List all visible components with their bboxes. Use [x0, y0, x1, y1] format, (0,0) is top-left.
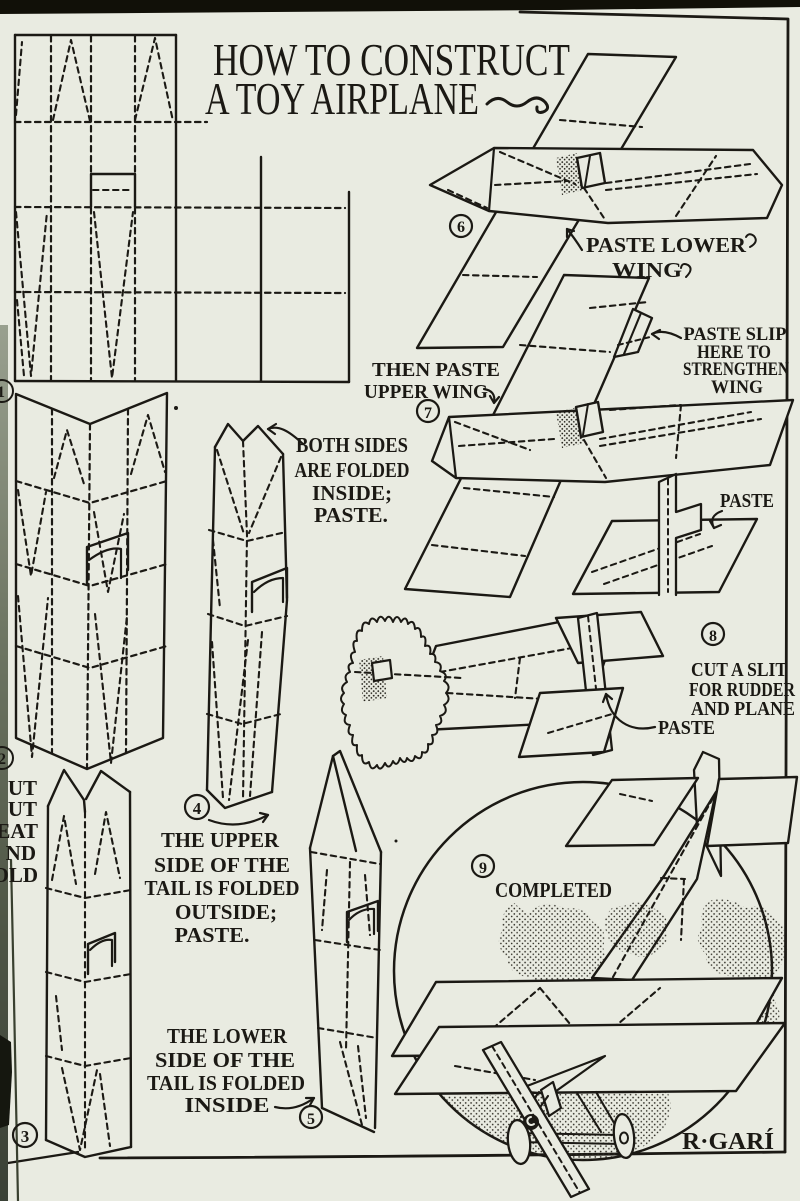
svg-text:THE LOWER: THE LOWER — [167, 1024, 288, 1048]
svg-text:COMPLETED: COMPLETED — [495, 878, 612, 902]
svg-text:BOTH SIDES: BOTH SIDES — [296, 433, 408, 457]
svg-text:INSIDE: INSIDE — [185, 1093, 270, 1117]
svg-text:INSIDE;: INSIDE; — [312, 481, 392, 505]
svg-text:3: 3 — [21, 1127, 30, 1146]
svg-text:THE UPPER: THE UPPER — [161, 828, 280, 852]
svg-text:2: 2 — [0, 751, 6, 768]
svg-text:THEN PASTE: THEN PASTE — [372, 359, 500, 381]
svg-text:6: 6 — [457, 219, 465, 236]
svg-text:9: 9 — [479, 860, 487, 877]
svg-text:UT: UT — [8, 797, 37, 821]
svg-text:TAIL IS FOLDED: TAIL IS FOLDED — [145, 876, 300, 900]
svg-text:PASTE: PASTE — [720, 490, 774, 512]
svg-text:PASTE.: PASTE. — [175, 923, 250, 947]
svg-text:WING: WING — [711, 377, 763, 398]
svg-text:8: 8 — [709, 628, 717, 645]
svg-text:SIDE OF THE: SIDE OF THE — [155, 1048, 295, 1072]
svg-text:OUTSIDE;: OUTSIDE; — [175, 900, 277, 924]
svg-text:OLD: OLD — [0, 863, 38, 887]
svg-text:EAT: EAT — [0, 819, 38, 843]
svg-text:ND: ND — [6, 841, 36, 865]
svg-text:PASTE: PASTE — [658, 717, 715, 739]
svg-text:A TOY AIRPLANE: A TOY AIRPLANE — [205, 73, 479, 124]
svg-text:4: 4 — [193, 799, 202, 818]
svg-text:R·GARÍ: R·GARÍ — [682, 1129, 774, 1155]
svg-text:UPPER WING: UPPER WING — [364, 381, 488, 403]
svg-text:1: 1 — [0, 384, 5, 401]
svg-text:TAIL IS FOLDED: TAIL IS FOLDED — [147, 1071, 305, 1095]
svg-text:SIDE OF THE: SIDE OF THE — [154, 853, 290, 877]
svg-text:PASTE.: PASTE. — [314, 503, 388, 527]
svg-text:7: 7 — [424, 405, 432, 422]
svg-text:CUT A SLIT: CUT A SLIT — [691, 659, 788, 681]
svg-text:ARE FOLDED: ARE FOLDED — [295, 458, 410, 482]
svg-text:5: 5 — [307, 1111, 315, 1128]
svg-text:PASTE LOWER: PASTE LOWER — [586, 233, 747, 257]
